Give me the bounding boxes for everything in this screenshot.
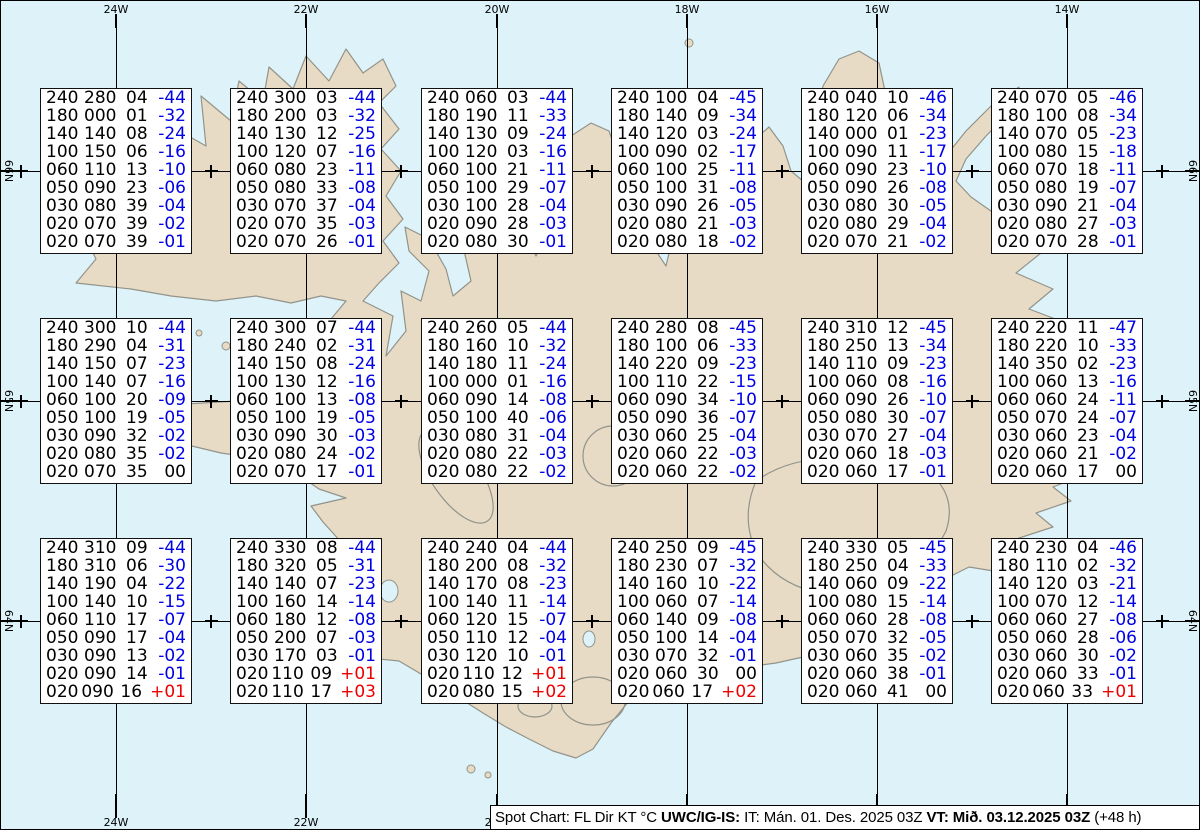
station-box: 24023004-4618011002-3214012003-211000701… [991, 538, 1143, 704]
fl-value: 020 [46, 464, 84, 482]
stations-layer: 24028004-4418000001-3214014008-241001500… [1, 1, 1199, 829]
fl-value: 020 [807, 684, 845, 702]
caption-issuer: UWC/IG-IS: [661, 809, 740, 826]
station-box: 24007005-4618010008-3414007005-231000801… [991, 88, 1143, 254]
kt-value: 33 [1071, 684, 1101, 702]
dir-value: 070 [1035, 234, 1077, 252]
temp-value: -01 [348, 464, 376, 482]
caption-bar: Spot Chart: FL Dir KT °C UWC/IG-IS: IT: … [490, 805, 1199, 829]
dir-value: 080 [465, 234, 507, 252]
fl-value: 020 [236, 684, 271, 702]
caption-legend: Spot Chart: FL Dir KT °C [495, 809, 661, 826]
temp-value: 00 [1109, 464, 1137, 482]
temp-value: -02 [729, 464, 757, 482]
caption-valid-time: VT: Mið. 03.12.2025 03Z [927, 809, 1091, 826]
dir-value: 070 [84, 234, 126, 252]
station-box: 24028004-4418000001-3214014008-241001500… [40, 88, 192, 254]
station-box: 24004010-4618012006-3414000001-231000901… [801, 88, 953, 254]
chart-frame: 24W24W22W22W20W20W18W18W16W16W14W14W66N6… [0, 0, 1200, 830]
dir-value: 070 [274, 234, 316, 252]
temp-value: -02 [539, 464, 567, 482]
dir-value: 060 [655, 464, 697, 482]
temp-value: +02 [721, 684, 757, 702]
kt-value: 30 [507, 234, 539, 252]
temp-value: +01 [150, 684, 186, 702]
dir-value: 080 [655, 234, 697, 252]
temp-value: -01 [919, 464, 947, 482]
fl-value: 020 [997, 234, 1035, 252]
temp-value: -01 [158, 234, 186, 252]
kt-value: 21 [887, 234, 919, 252]
station-box: 24033005-4518025004-3314006009-221000801… [801, 538, 953, 704]
kt-value: 22 [507, 464, 539, 482]
dir-value: 080 [465, 464, 507, 482]
dir-value: 080 [462, 684, 501, 702]
temp-value: 00 [158, 464, 186, 482]
kt-value: 41 [887, 684, 919, 702]
station-row: 02006017+02 [617, 684, 757, 702]
station-box: 24030007-4418024002-3114015008-241001301… [230, 318, 382, 484]
temp-value: +02 [531, 684, 567, 702]
kt-value: 17 [691, 684, 721, 702]
station-row: 0200703500 [46, 464, 186, 482]
station-box: 24031012-4518025013-3414011009-231000600… [801, 318, 953, 484]
caption-issue-time: IT: Mán. 01. Des. 2025 03Z [740, 809, 926, 826]
fl-value: 020 [236, 234, 274, 252]
dir-value: 060 [845, 684, 887, 702]
temp-value: -01 [348, 234, 376, 252]
kt-value: 22 [697, 464, 729, 482]
fl-value: 020 [427, 464, 465, 482]
kt-value: 39 [126, 234, 158, 252]
caption-forecast-offset: (+48 h) [1090, 809, 1141, 826]
station-row: 02007021-02 [807, 234, 947, 252]
fl-value: 020 [997, 464, 1035, 482]
fl-value: 020 [807, 234, 845, 252]
station-row: 02006022-02 [617, 464, 757, 482]
kt-value: 17 [310, 684, 340, 702]
station-row: 02006017-01 [807, 464, 947, 482]
station-box: 24033008-4418032005-3114014007-231001601… [230, 538, 382, 704]
station-box: 24030003-4418020003-3214013012-251001200… [230, 88, 382, 254]
kt-value: 15 [501, 684, 531, 702]
station-row: 02008022-02 [427, 464, 567, 482]
station-row: 02011017+03 [236, 684, 376, 702]
fl-value: 020 [807, 464, 845, 482]
kt-value: 26 [316, 234, 348, 252]
station-row: 02007017-01 [236, 464, 376, 482]
kt-value: 17 [1077, 464, 1109, 482]
fl-value: 020 [997, 684, 1032, 702]
kt-value: 16 [120, 684, 150, 702]
fl-value: 020 [427, 234, 465, 252]
temp-value: 00 [919, 684, 947, 702]
station-box: 24025009-4518023007-3214016010-221000600… [611, 538, 763, 704]
station-row: 0200604100 [807, 684, 947, 702]
station-row: 02009016+01 [46, 684, 186, 702]
station-box: 24010004-4518014009-3414012003-241000900… [611, 88, 763, 254]
dir-value: 070 [845, 234, 887, 252]
station-row: 02008030-01 [427, 234, 567, 252]
dir-value: 060 [652, 684, 691, 702]
temp-value: +03 [340, 684, 376, 702]
fl-value: 020 [617, 464, 655, 482]
station-row: 02008015+02 [427, 684, 567, 702]
station-row: 02007039-01 [46, 234, 186, 252]
dir-value: 060 [1035, 464, 1077, 482]
station-box: 24024004-4418020008-3214017008-231001401… [421, 538, 573, 704]
temp-value: -01 [1109, 234, 1137, 252]
kt-value: 18 [697, 234, 729, 252]
fl-value: 020 [236, 464, 274, 482]
temp-value: -02 [919, 234, 947, 252]
kt-value: 17 [316, 464, 348, 482]
station-row: 0200601700 [997, 464, 1137, 482]
station-row: 02007026-01 [236, 234, 376, 252]
dir-value: 060 [1032, 684, 1071, 702]
station-box: 24030010-4418029004-3114015007-231001400… [40, 318, 192, 484]
dir-value: 110 [271, 684, 310, 702]
kt-value: 28 [1077, 234, 1109, 252]
station-box: 24022011-4718022010-3314035002-231000601… [991, 318, 1143, 484]
dir-value: 070 [274, 464, 316, 482]
station-box: 24006003-4418019011-3314013009-241001200… [421, 88, 573, 254]
fl-value: 020 [46, 234, 84, 252]
dir-value: 060 [845, 464, 887, 482]
fl-value: 020 [617, 684, 652, 702]
temp-value: -02 [729, 234, 757, 252]
station-box: 24028008-4518010006-3314022009-231001102… [611, 318, 763, 484]
station-row: 02007028-01 [997, 234, 1137, 252]
temp-value: +01 [1101, 684, 1137, 702]
kt-value: 35 [126, 464, 158, 482]
dir-value: 070 [84, 464, 126, 482]
fl-value: 020 [617, 234, 655, 252]
kt-value: 17 [887, 464, 919, 482]
temp-value: -01 [539, 234, 567, 252]
station-row: 02008018-02 [617, 234, 757, 252]
dir-value: 090 [81, 684, 120, 702]
fl-value: 020 [46, 684, 81, 702]
station-box: 24026005-4418016010-3214018011-241000000… [421, 318, 573, 484]
station-box: 24031009-4418031006-3014019004-221001401… [40, 538, 192, 704]
fl-value: 020 [427, 684, 462, 702]
station-row: 02006033+01 [997, 684, 1137, 702]
